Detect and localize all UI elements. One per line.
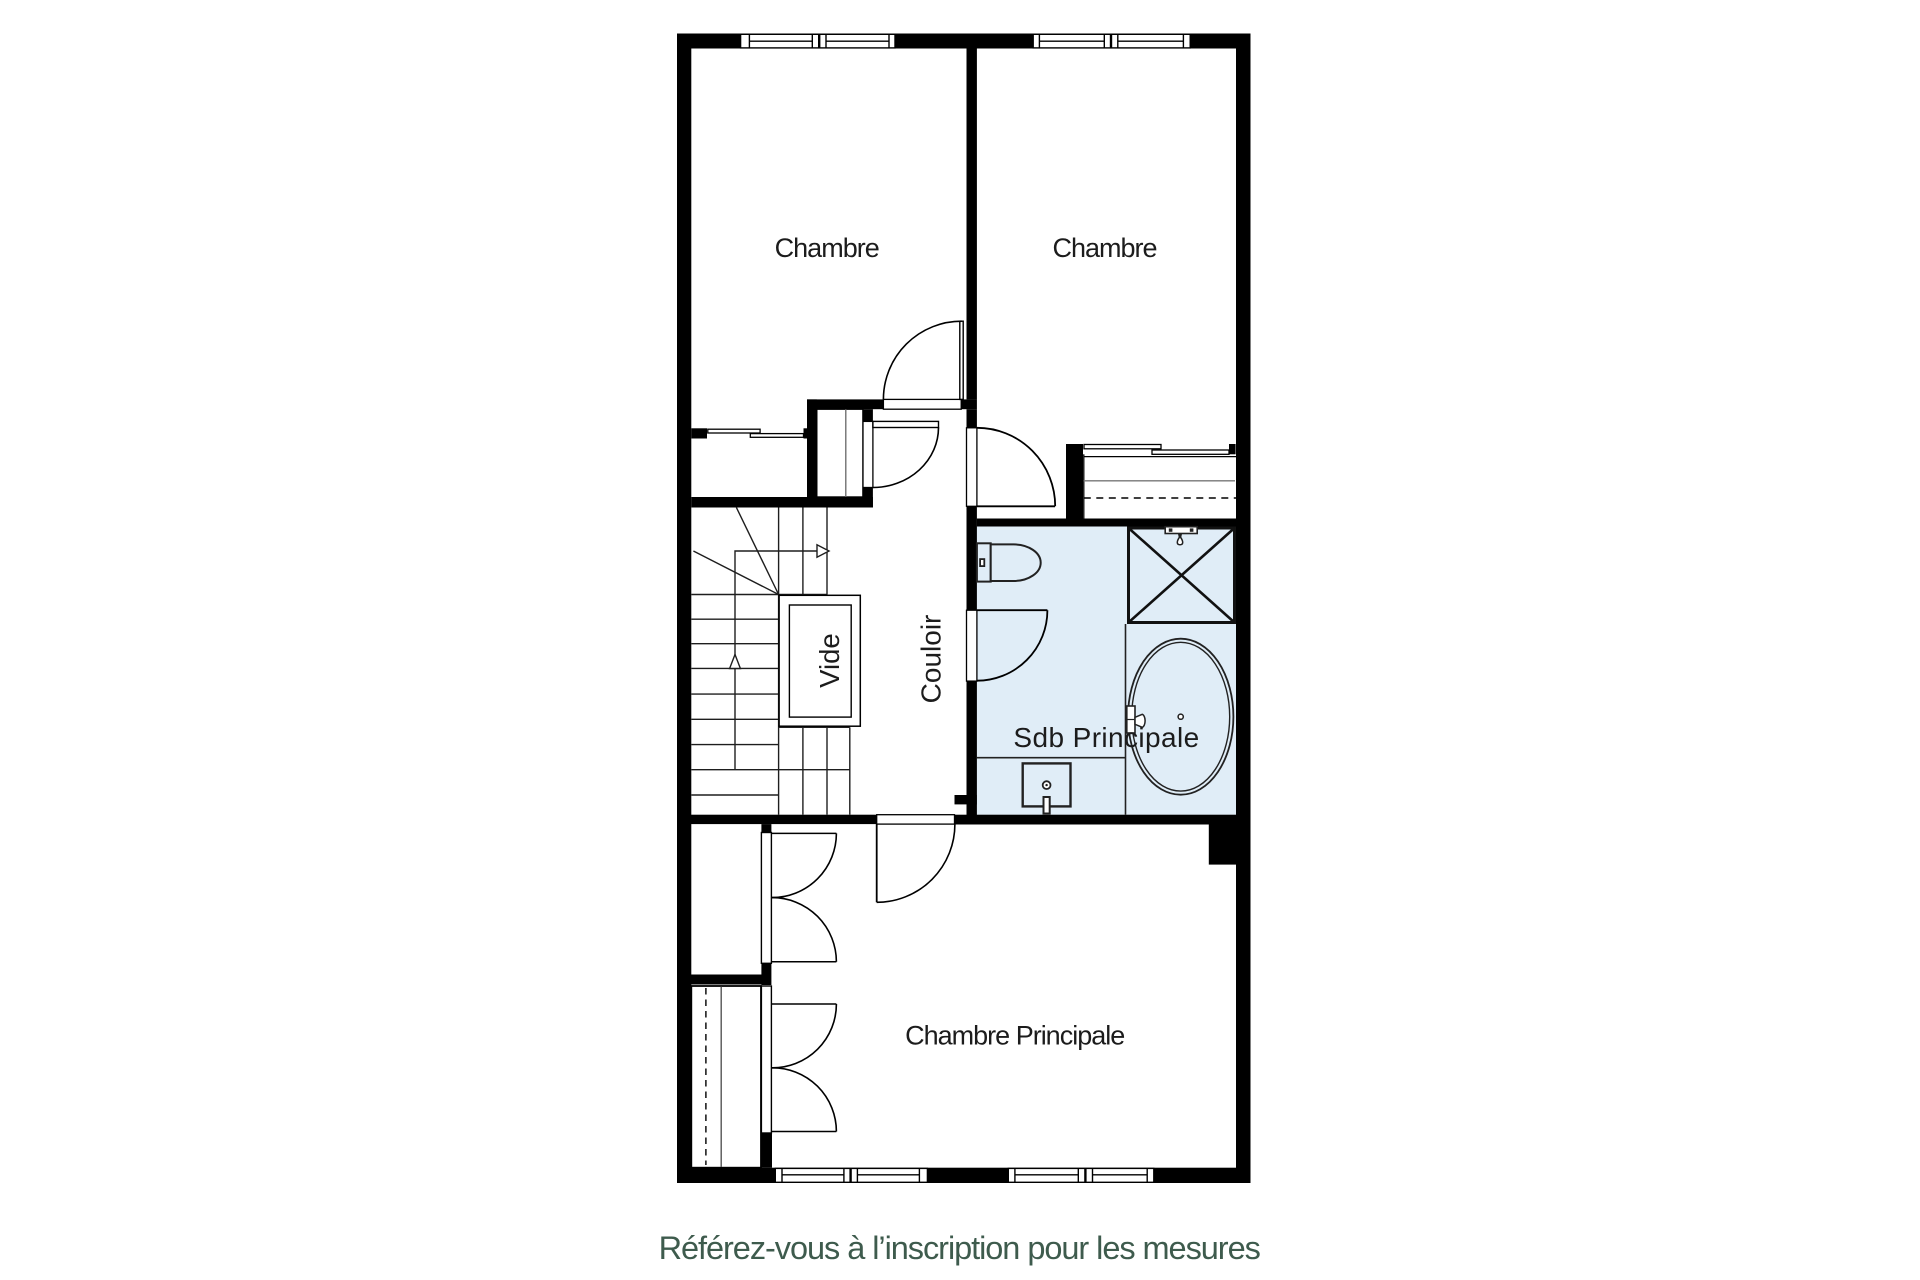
svg-text:Chambre: Chambre [1052, 233, 1156, 263]
svg-text:Chambre: Chambre [775, 233, 879, 263]
svg-text:Vide: Vide [814, 633, 845, 688]
svg-text:Référez-vous à l’inscription p: Référez-vous à l’inscription pour les me… [659, 1230, 1261, 1266]
svg-text:Chambre Principale: Chambre Principale [905, 1020, 1124, 1050]
svg-text:Sdb Principale: Sdb Principale [1013, 722, 1199, 753]
svg-text:Couloir: Couloir [916, 615, 947, 704]
